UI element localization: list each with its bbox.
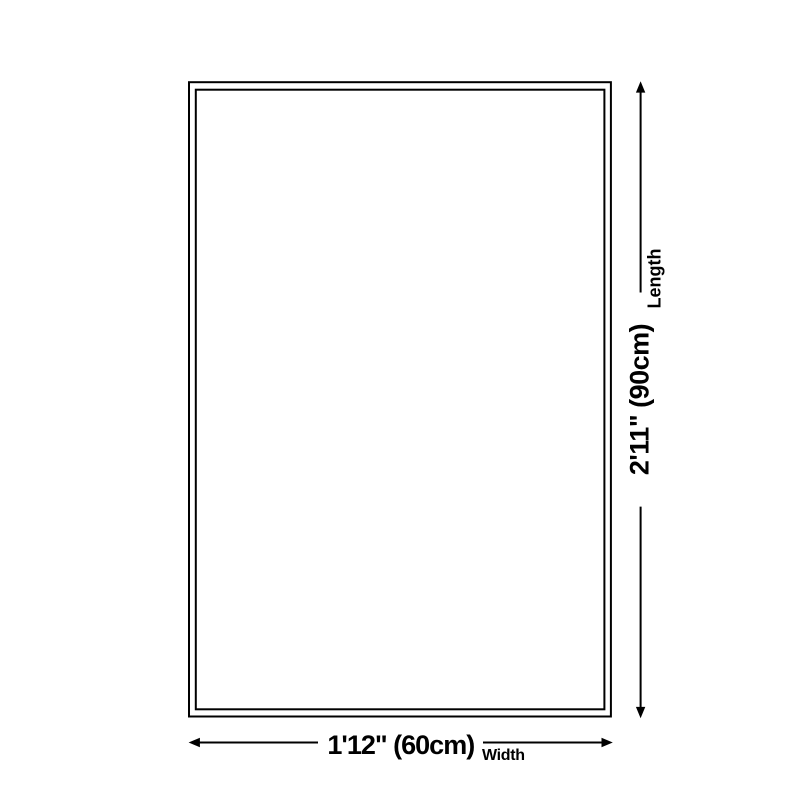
svg-text:1'12" (60cm): 1'12" (60cm)	[327, 730, 474, 760]
svg-text:Length: Length	[645, 249, 665, 309]
svg-text:2'11" (90cm): 2'11" (90cm)	[625, 324, 655, 475]
svg-text:Width: Width	[482, 747, 525, 764]
